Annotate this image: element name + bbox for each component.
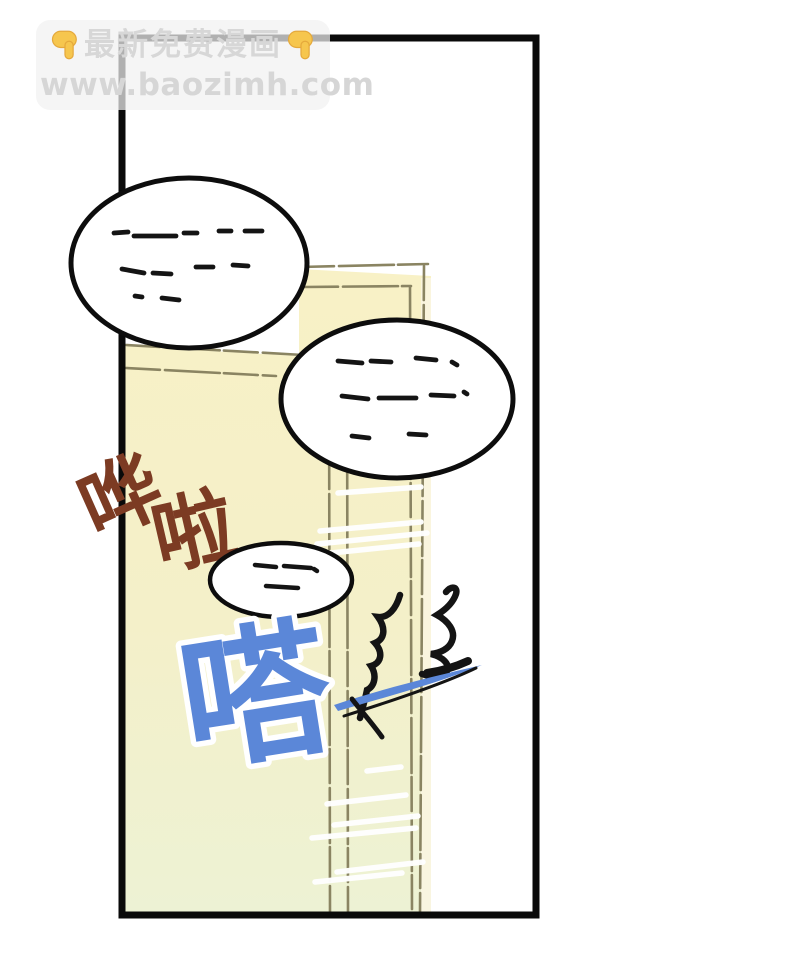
comic-panel-scene: 哗 啦 嗒: [0, 0, 800, 965]
comic-page: 哗 啦 嗒 最新免费漫: [0, 0, 800, 965]
bubble-outline: [71, 178, 307, 348]
sfx-da: 嗒: [169, 600, 344, 793]
speech-bubble-middle: [281, 320, 513, 478]
speech-bubble-top-left: [71, 178, 307, 348]
